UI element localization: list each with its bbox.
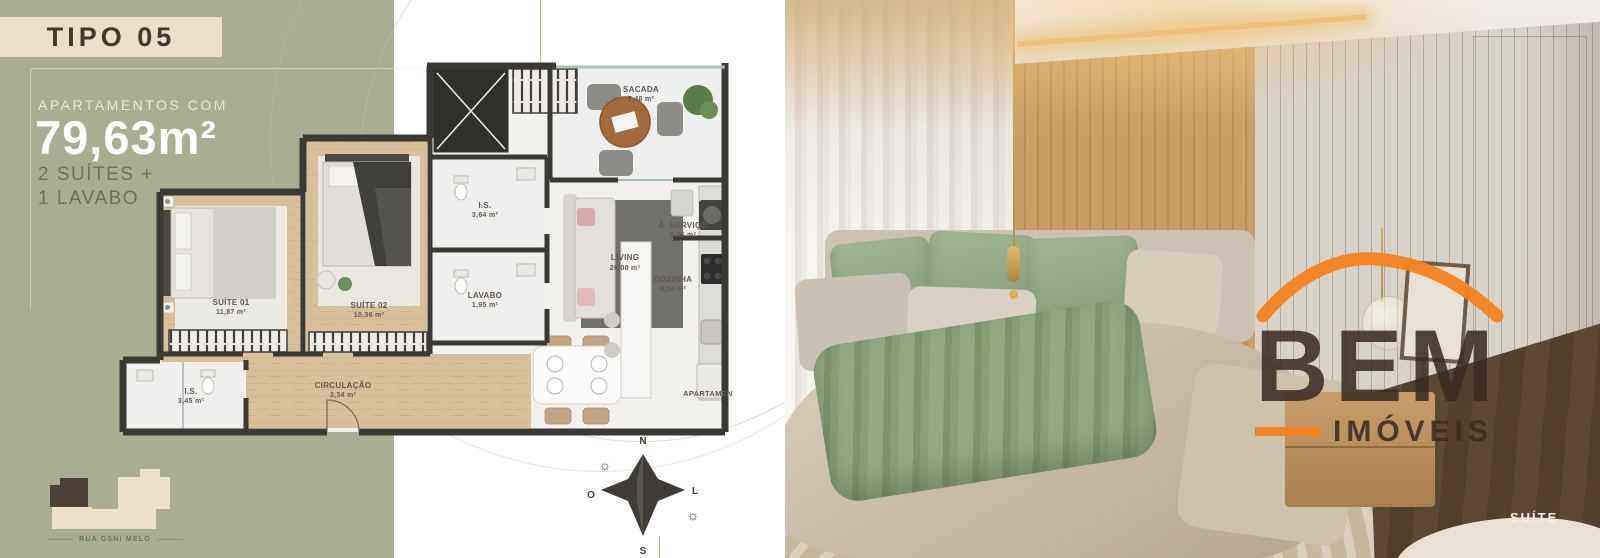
warm-glow [875, 0, 1495, 120]
floorplan-panel: TIPO 05 APARTAMENTOS COM 79,63m² 2 SUÍTE… [0, 0, 785, 558]
building-block [128, 499, 156, 529]
room-label: SUÍTE 01 [212, 298, 249, 307]
logo-subtitle: IMÓVEIS [1333, 415, 1493, 449]
svg-text:26,00 m²: 26,00 m² [610, 265, 641, 272]
pendant-cord [1013, 52, 1015, 248]
pendant-lamp [1007, 246, 1020, 282]
suite-photo: BEM IMÓVEIS SUÍTE [785, 0, 1600, 558]
unit-type-badge: TIPO 05 [0, 17, 222, 57]
room-label: Á. SERVIÇO [658, 221, 707, 230]
room-label: I.S. [478, 201, 491, 210]
svg-text:7,48 m²: 7,48 m² [628, 96, 655, 103]
svg-text:9,14 m²: 9,14 m² [660, 286, 687, 293]
total-area-value: 79,63m² [35, 110, 217, 165]
logo-wordmark: BEM [1255, 325, 1535, 409]
svg-text:2,25 m²: 2,25 m² [670, 232, 697, 239]
svg-text:3,34 m²: 3,34 m² [330, 392, 357, 399]
apartment-number-label: APARTAMENTO 05 [683, 389, 733, 398]
compass-east: L [692, 486, 698, 497]
svg-text:11,87 m²: 11,87 m² [216, 309, 246, 316]
room-label: LAVABO [468, 291, 502, 300]
pendant-bulb [1009, 290, 1018, 299]
room-label: I.S. [184, 387, 197, 396]
logo-dash-icon [1255, 427, 1321, 436]
brand-watermark: BEM IMÓVEIS [1255, 246, 1535, 449]
building-block [52, 507, 92, 529]
compass-south: S [640, 546, 647, 557]
svg-text:3,45 m²: 3,45 m² [178, 398, 205, 405]
compass-north: N [639, 436, 646, 447]
highlighted-unit [60, 478, 88, 507]
svg-text:10,36 m²: 10,36 m² [354, 312, 385, 319]
feature-lavabo: 1 LAVABO [38, 188, 139, 210]
building-block [140, 469, 160, 479]
svg-text:1,95 m²: 1,95 m² [472, 302, 499, 309]
street-dash [157, 539, 183, 540]
compass-west: O [587, 490, 595, 501]
unit-type-label: TIPO 05 [47, 22, 176, 53]
site-keyplan: RUA OSNI MELO [40, 452, 190, 548]
room-label: COZINHA [654, 275, 693, 284]
feature-suites: 2 SUÍTES + [38, 164, 154, 186]
room-label: CIRCULAÇÃO [315, 381, 372, 390]
room-label: SUÍTE 02 [350, 301, 387, 310]
compass-rose: N S L O ☼ ☼ [575, 428, 711, 558]
photo-caption: SUÍTE [1510, 510, 1558, 525]
room-label: LIVING [611, 253, 639, 262]
stairs [513, 69, 577, 113]
elevator-shaft [433, 69, 509, 153]
room-label: SACADA [623, 85, 659, 94]
street-name: RUA OSNI MELO [79, 536, 151, 543]
street-dash [47, 539, 73, 540]
building-block [90, 509, 128, 529]
svg-text:3,64 m²: 3,64 m² [472, 212, 499, 219]
vertical-rule-decoration [540, 0, 541, 64]
street-row: RUA OSNI MELO [40, 536, 190, 543]
marketing-poster: TIPO 05 APARTAMENTOS COM 79,63m² 2 SUÍTE… [0, 0, 1600, 558]
sun-icon: ☼ [599, 457, 612, 473]
sun-icon: ☼ [687, 507, 700, 523]
